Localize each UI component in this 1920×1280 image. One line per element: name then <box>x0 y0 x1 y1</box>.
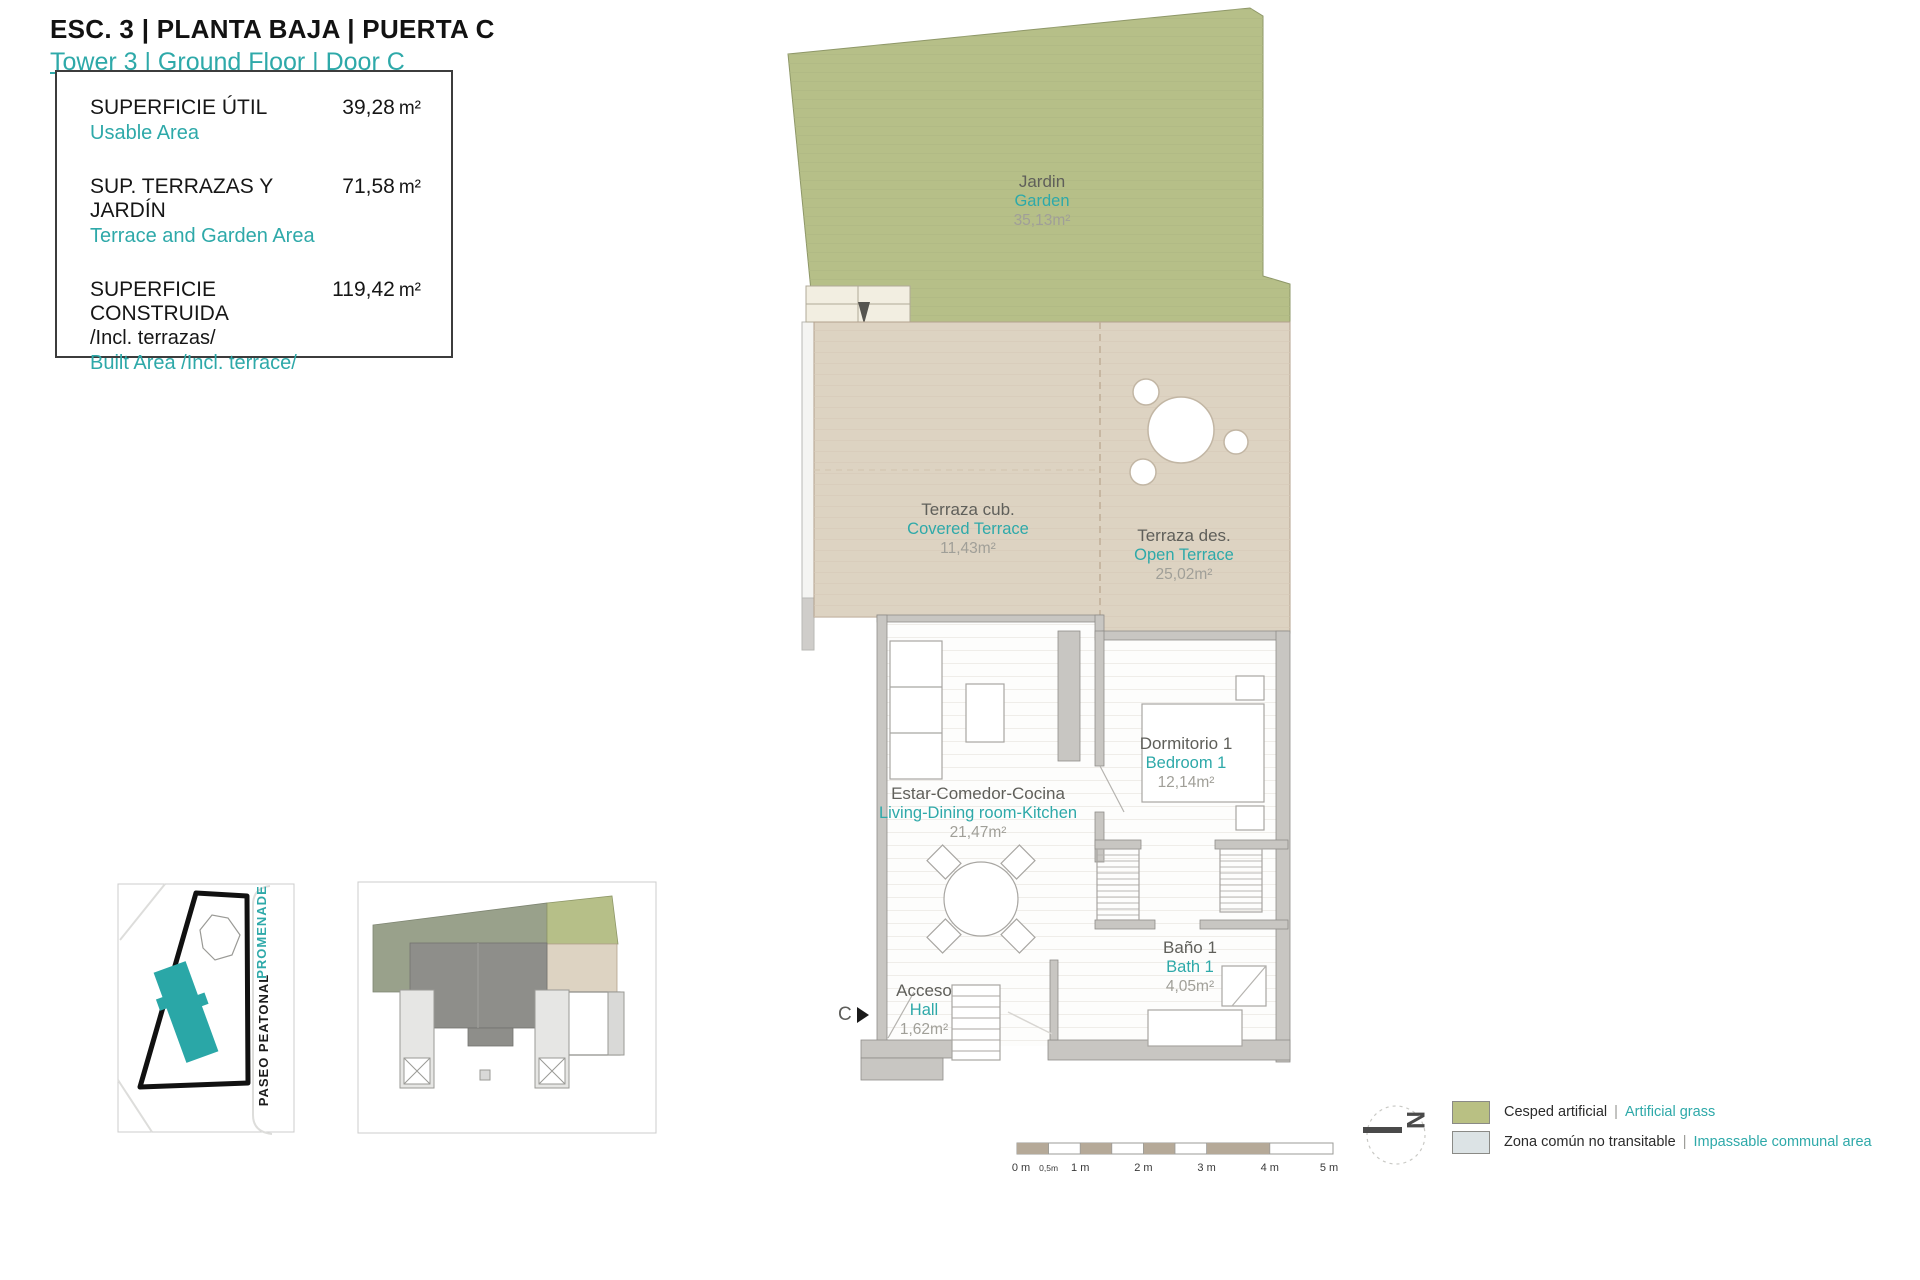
scale-labels: 0 m 0,5m 1 m 2 m 3 m 4 m 5 m <box>1012 1162 1338 1174</box>
page-title: ESC. 3 | PLANTA BAJA | PUERTA C <box>50 14 495 45</box>
svg-text:2 m: 2 m <box>1134 1162 1152 1174</box>
legend-swatch-grass <box>1452 1101 1490 1124</box>
summary-label-en: Usable Area <box>90 122 421 145</box>
sofa <box>890 641 942 779</box>
room-label-bedroom1: Dormitorio 1 Bedroom 1 12,14m² <box>1140 734 1233 793</box>
terrace-area <box>814 322 1290 633</box>
north-arrow-icon: N <box>1363 1106 1429 1164</box>
svg-text:N: N <box>1401 1111 1429 1129</box>
summary-row-terrace-garden: SUP. TERRAZAS Y JARDÍN 71,58m² Terrace a… <box>90 175 421 248</box>
summary-row-built: SUPERFICIE CONSTRUIDA 119,42m² /Incl. te… <box>90 278 421 375</box>
street-label-promenade: PROMENADE <box>254 885 269 979</box>
svg-text:0 m: 0 m <box>1012 1162 1030 1174</box>
bathtub <box>1148 1010 1242 1046</box>
header: ESC. 3 | PLANTA BAJA | PUERTA C Tower 3 … <box>50 14 495 77</box>
room-label-garden: Jardin Garden 35,13m² <box>1014 172 1071 231</box>
summary-unit: m² <box>399 280 421 301</box>
garden-steps <box>806 286 910 324</box>
sink <box>1222 966 1266 1006</box>
summary-label-note: /Incl. terrazas/ <box>90 327 421 350</box>
room-label-living: Estar-Comedor-Cocina Living-Dining room-… <box>879 784 1077 843</box>
location-map: PROMENADE PASEO PEATONAL <box>118 884 294 1134</box>
summary-value: 71,58 <box>342 175 395 198</box>
summary-label: SUPERFICIE ÚTIL <box>90 96 267 120</box>
svg-text:1 m: 1 m <box>1071 1162 1089 1174</box>
keyplan-unit-garden <box>547 896 618 944</box>
room-label-open-terrace: Terraza des. Open Terrace 25,02m² <box>1134 526 1234 585</box>
room-label-hall: Acceso Hall 1,62m² <box>896 981 952 1040</box>
summary-label-en: Terrace and Garden Area <box>90 225 421 248</box>
legend-swatch-communal <box>1452 1131 1490 1154</box>
svg-text:4 m: 4 m <box>1261 1162 1279 1174</box>
coffee-table <box>966 684 1004 742</box>
entrance-label: C <box>838 1004 852 1026</box>
floorplan-page: PROMENADE PASEO PEATONAL <box>0 0 1920 1280</box>
area-summary-box: SUPERFICIE ÚTIL 39,28m² Usable Area SUP.… <box>55 70 453 358</box>
scale-bar: 0 m 0,5m 1 m 2 m 3 m 4 m 5 m <box>1012 1143 1338 1174</box>
summary-label: SUPERFICIE CONSTRUIDA <box>90 278 332 326</box>
nightstand <box>1236 806 1264 830</box>
garden-area <box>788 8 1290 324</box>
summary-unit: m² <box>399 98 421 119</box>
entrance-arrow-icon <box>857 1007 869 1023</box>
nightstand <box>1236 676 1264 700</box>
summary-value: 39,28 <box>342 96 395 119</box>
svg-text:5 m: 5 m <box>1320 1162 1338 1174</box>
entrance-marker: C <box>838 1004 869 1026</box>
room-label-covered-terrace: Terraza cub. Covered Terrace 11,43m² <box>907 500 1029 559</box>
legend-item-communal-area: Zona común no transitable | Impassable c… <box>1452 1130 1872 1154</box>
summary-label-en: Built Area /Incl. terrace/ <box>90 352 421 375</box>
summary-row-usable: SUPERFICIE ÚTIL 39,28m² Usable Area <box>90 96 421 145</box>
svg-text:3 m: 3 m <box>1197 1162 1215 1174</box>
legend-item-artificial-grass: Cesped artificial | Artificial grass <box>1452 1100 1872 1124</box>
summary-unit: m² <box>399 177 421 198</box>
keyplan-unit-terrace <box>547 944 617 992</box>
summary-value: 119,42 <box>332 278 395 301</box>
street-label-paseo-peatonal: PASEO PEATONAL <box>256 974 271 1106</box>
room-label-bath1: Baño 1 Bath 1 4,05m² <box>1163 938 1217 997</box>
svg-text:0,5m: 0,5m <box>1039 1163 1058 1173</box>
key-plan <box>358 882 656 1133</box>
summary-label: SUP. TERRAZAS Y JARDÍN <box>90 175 342 223</box>
communal-boundary-strip <box>802 322 814 650</box>
legend: Cesped artificial | Artificial grass Zon… <box>1452 1100 1872 1160</box>
